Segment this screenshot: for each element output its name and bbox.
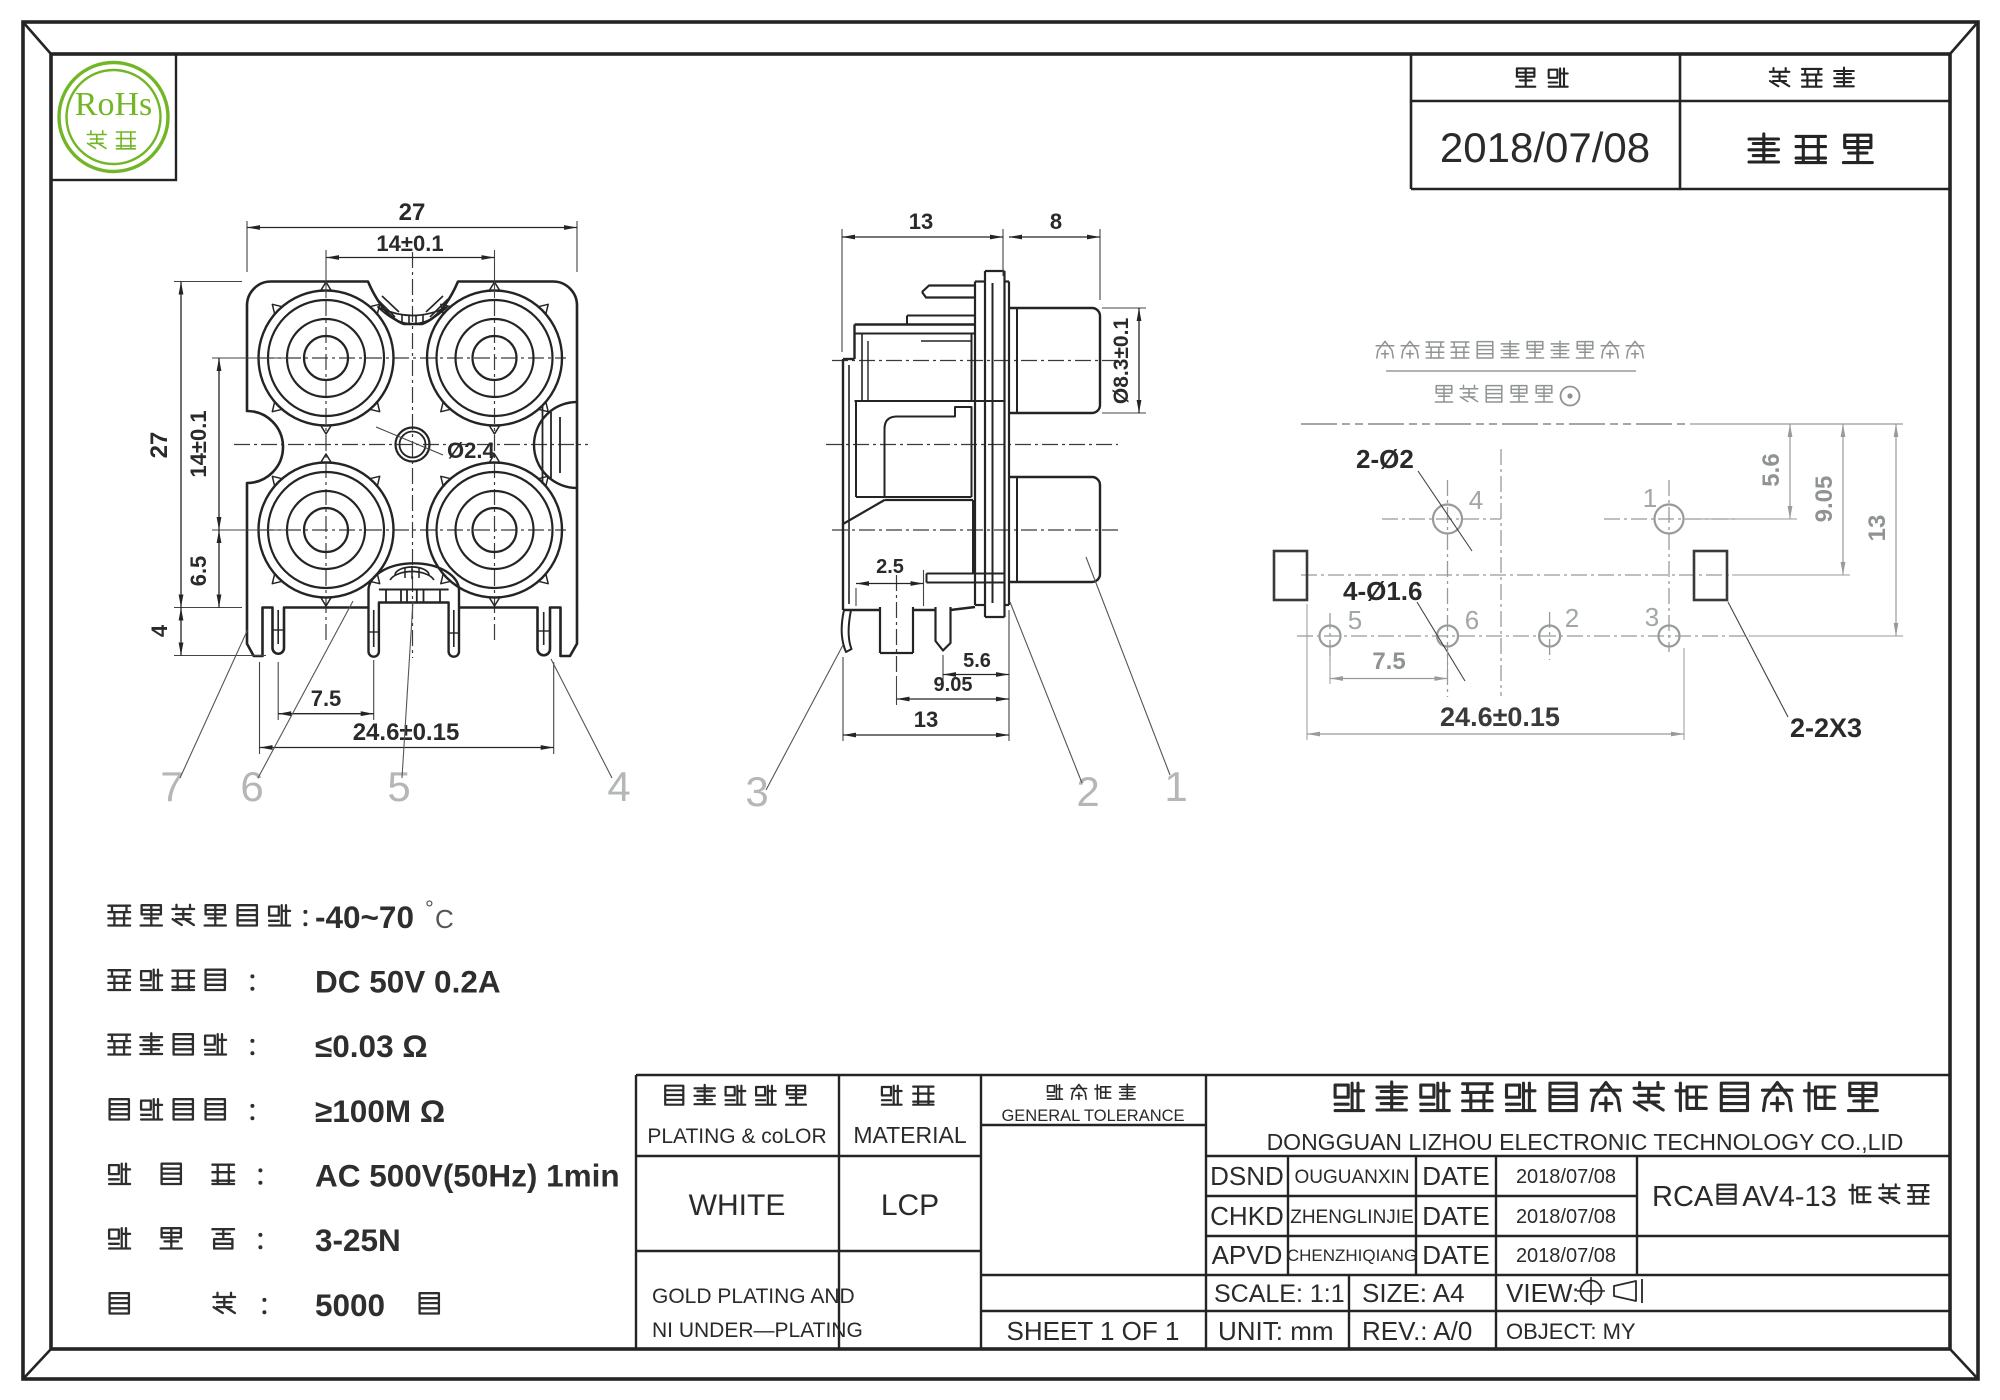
svg-text:DATE: DATE (1422, 1240, 1489, 1270)
svg-text:2: 2 (1076, 768, 1099, 815)
svg-text:9.05: 9.05 (934, 674, 973, 696)
svg-text:14±0.1: 14±0.1 (376, 231, 443, 256)
svg-text:6.5: 6.5 (186, 556, 211, 587)
svg-text:PLATING & coLOR: PLATING & coLOR (647, 1125, 826, 1148)
svg-text:GOLD PLATING AND: GOLD PLATING AND (652, 1285, 855, 1308)
svg-text:AV4-13: AV4-13 (1742, 1181, 1837, 1213)
svg-text:2018/07/08: 2018/07/08 (1516, 1166, 1616, 1188)
svg-text:≥100M Ω: ≥100M Ω (315, 1093, 445, 1129)
svg-text:CHENZHIQIANG: CHENZHIQIANG (1287, 1246, 1417, 1265)
svg-text:5: 5 (1348, 605, 1362, 635)
svg-text:27: 27 (146, 432, 173, 459)
svg-text:2018/07/08: 2018/07/08 (1516, 1206, 1616, 1228)
svg-text:6: 6 (240, 763, 263, 810)
svg-text:VIEW:: VIEW: (1506, 1278, 1579, 1308)
svg-text:OBJECT: MY: OBJECT: MY (1506, 1319, 1636, 1344)
svg-text:RoHs: RoHs (75, 86, 152, 123)
svg-text:4: 4 (607, 763, 630, 810)
svg-text:2.5: 2.5 (876, 556, 904, 578)
svg-text:RCA: RCA (1652, 1181, 1714, 1213)
svg-text:C: C (435, 904, 454, 934)
svg-text:LCP: LCP (881, 1189, 939, 1222)
svg-text:DONGGUAN LIZHOU ELECTRONIC TEC: DONGGUAN LIZHOU ELECTRONIC TECHNOLOGY CO… (1267, 1129, 1904, 1155)
svg-text:DSND: DSND (1210, 1161, 1284, 1191)
svg-text:5: 5 (387, 763, 410, 810)
svg-text:24.6±0.15: 24.6±0.15 (353, 719, 460, 746)
svg-text:SHEET 1 OF 1: SHEET 1 OF 1 (1007, 1316, 1180, 1346)
svg-text:3: 3 (1645, 602, 1659, 632)
svg-text:°: ° (425, 896, 434, 921)
svg-text:GENERAL TOLERANCE: GENERAL TOLERANCE (1001, 1107, 1184, 1125)
svg-text:5.6: 5.6 (963, 650, 991, 672)
svg-text:5000: 5000 (315, 1287, 385, 1323)
svg-text:DC 50V 0.2A: DC 50V 0.2A (315, 964, 501, 1000)
svg-text:4: 4 (147, 624, 172, 637)
svg-text:NI UNDER—PLATING: NI UNDER—PLATING (652, 1319, 863, 1342)
svg-text:Ø8.3±0.1: Ø8.3±0.1 (1110, 318, 1133, 405)
svg-text:7.5: 7.5 (311, 686, 342, 711)
svg-text:APVD: APVD (1212, 1240, 1283, 1270)
svg-text:WHITE: WHITE (689, 1189, 786, 1222)
svg-text:8: 8 (1050, 209, 1062, 234)
svg-text:13: 13 (909, 209, 933, 234)
svg-text:OUGUANXIN: OUGUANXIN (1294, 1167, 1409, 1188)
svg-text:27: 27 (399, 199, 426, 226)
svg-text:13: 13 (914, 707, 938, 732)
svg-text:DATE: DATE (1422, 1201, 1489, 1231)
svg-text:7: 7 (160, 763, 183, 810)
svg-text:AC 500V(50Hz) 1min: AC 500V(50Hz) 1min (315, 1158, 620, 1194)
svg-text:24.6±0.15: 24.6±0.15 (1440, 702, 1560, 732)
svg-text:7.5: 7.5 (1372, 648, 1405, 675)
svg-text:UNIT: mm: UNIT: mm (1218, 1316, 1334, 1346)
svg-text:2018/07/08: 2018/07/08 (1440, 124, 1650, 171)
svg-text:4: 4 (1469, 485, 1483, 515)
svg-text:9.05: 9.05 (1811, 476, 1838, 523)
svg-text:2018/07/08: 2018/07/08 (1516, 1245, 1616, 1267)
svg-text:4-Ø1.6: 4-Ø1.6 (1343, 576, 1423, 606)
svg-text:MATERIAL: MATERIAL (853, 1122, 967, 1148)
svg-text:-40~70: -40~70 (315, 899, 414, 935)
svg-text:3-25N: 3-25N (315, 1222, 401, 1258)
svg-text:CHKD: CHKD (1210, 1201, 1284, 1231)
svg-text:14±0.1: 14±0.1 (186, 410, 211, 477)
svg-text:SCALE: 1:1: SCALE: 1:1 (1214, 1280, 1345, 1308)
svg-text:SIZE: A4: SIZE: A4 (1362, 1278, 1465, 1308)
svg-text:1: 1 (1643, 483, 1657, 513)
svg-text:2: 2 (1565, 603, 1579, 633)
svg-text:6: 6 (1465, 605, 1479, 635)
svg-text:DATE: DATE (1422, 1161, 1489, 1191)
svg-text:Ø2.4: Ø2.4 (447, 438, 495, 463)
svg-text:REV.: A/0: REV.: A/0 (1362, 1316, 1472, 1346)
svg-text:ZHENGLINJIE: ZHENGLINJIE (1290, 1207, 1414, 1228)
svg-text:3: 3 (745, 768, 768, 815)
svg-text:≤0.03 Ω: ≤0.03 Ω (315, 1028, 428, 1064)
svg-text:13: 13 (1864, 515, 1891, 542)
svg-text:5.6: 5.6 (1758, 453, 1785, 486)
svg-text:2-2X3: 2-2X3 (1790, 713, 1862, 743)
svg-text:2-Ø2: 2-Ø2 (1356, 444, 1414, 474)
